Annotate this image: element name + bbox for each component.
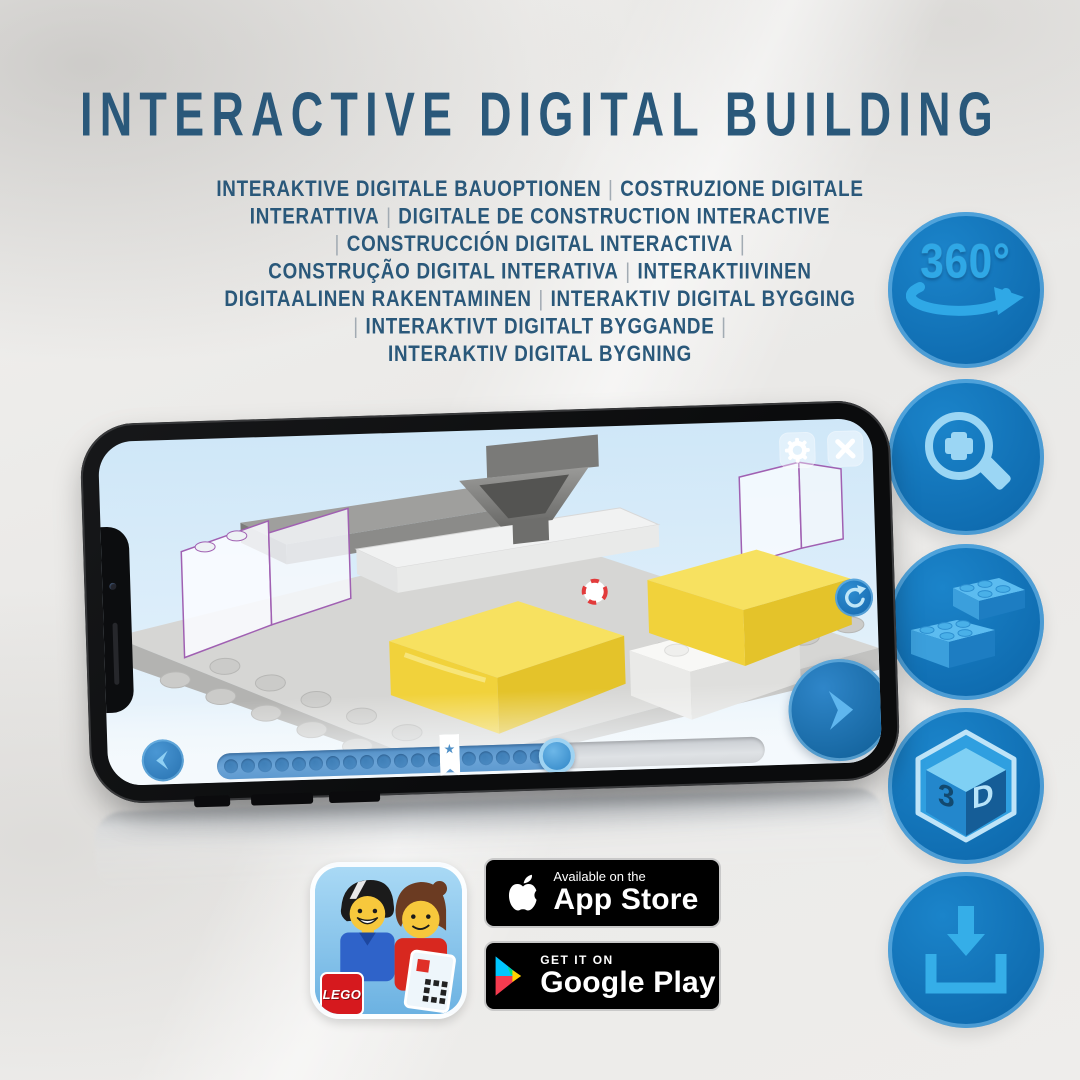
google-play-badge[interactable]: GET IT ON Google Play xyxy=(484,941,721,1011)
apple-logo-icon xyxy=(506,872,540,914)
google-play-top-line: GET IT ON xyxy=(540,954,716,967)
feature-download xyxy=(888,872,1044,1028)
app-store-bottom-line: App Store xyxy=(553,884,698,916)
progress-dots xyxy=(224,749,544,773)
rotate-model-icon xyxy=(841,584,868,611)
lego-3d-scene[interactable] xyxy=(98,418,882,786)
lego-bricks-icon xyxy=(903,564,1029,680)
3d-cube-icon xyxy=(906,728,1026,844)
app-screen: ★ xyxy=(98,418,882,786)
feature-zoom xyxy=(888,379,1044,535)
settings-gear-icon xyxy=(783,436,812,465)
lego-logo-text: LEGO xyxy=(323,987,362,1002)
front-camera xyxy=(109,583,116,590)
lego-logo: LEGO xyxy=(320,972,364,1016)
poster-canvas: INTERACTIVE DIGITAL BUILDING INTERAKTIVE… xyxy=(0,0,1080,1080)
feature-3d: 3 D xyxy=(888,708,1044,864)
subtitle-block: INTERAKTIVE DIGITALE BAUOPTIONEN|COSTRUZ… xyxy=(183,176,897,369)
page-title: INTERACTIVE DIGITAL BUILDING xyxy=(54,78,1026,151)
earpiece-speaker xyxy=(112,623,119,685)
settings-button[interactable] xyxy=(779,432,816,469)
360-rotation-icon: 360° xyxy=(921,235,1011,290)
zoom-in-icon xyxy=(911,402,1021,512)
close-icon xyxy=(833,436,858,461)
feature-360: 360° xyxy=(888,212,1044,368)
app-store-badge[interactable]: Available on the App Store xyxy=(484,858,721,928)
app-store-text: Available on the App Store xyxy=(553,870,698,915)
app-store-top-line: Available on the xyxy=(553,870,698,884)
google-play-bottom-line: Google Play xyxy=(540,967,716,999)
phone-mockup: ★ xyxy=(79,399,901,804)
download-icon xyxy=(911,898,1021,1002)
phone-power-button xyxy=(194,795,230,807)
lego-app-icon[interactable]: LEGO xyxy=(310,862,467,1019)
next-step-icon xyxy=(817,682,863,737)
phone-notch xyxy=(98,526,134,713)
feature-bricks xyxy=(888,544,1044,700)
google-play-text: GET IT ON Google Play xyxy=(540,954,716,998)
phone-volume-down-button xyxy=(329,791,380,804)
phone-volume-up-button xyxy=(251,793,313,806)
previous-step-icon xyxy=(151,747,174,774)
cube-letter-3: 3 xyxy=(938,778,955,816)
google-play-icon xyxy=(489,954,527,998)
cube-letter-d: D xyxy=(972,777,994,816)
close-button[interactable] xyxy=(827,430,864,467)
